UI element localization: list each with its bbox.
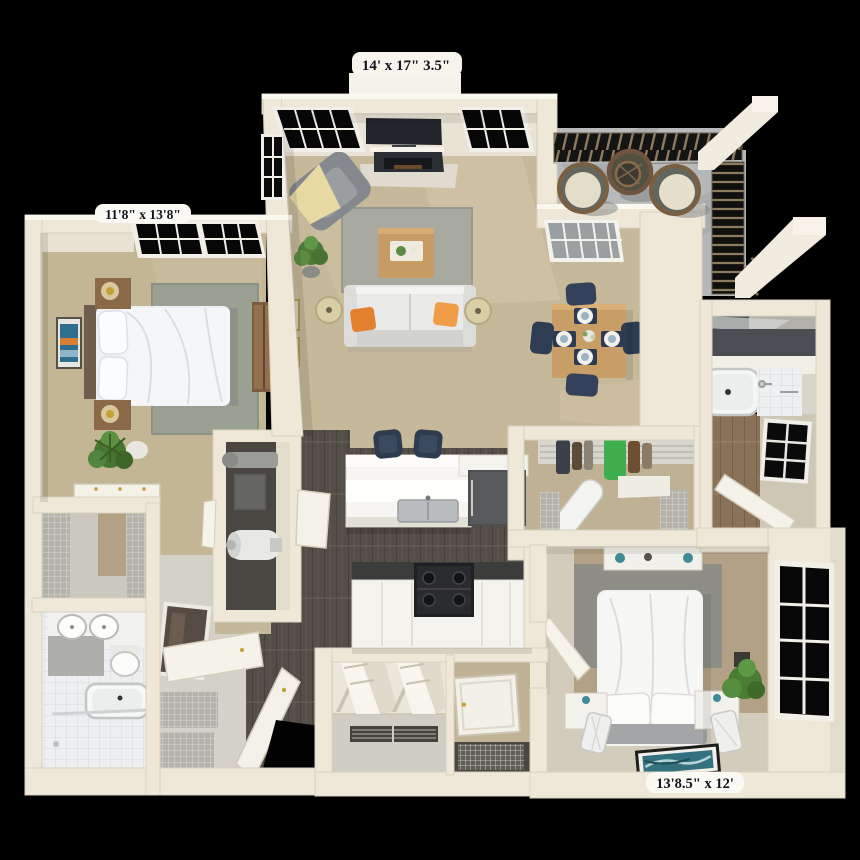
svg-text:14' x 17" 3.5": 14' x 17" 3.5" [362, 58, 450, 74]
svg-text:11'8" x 13'8": 11'8" x 13'8" [105, 207, 181, 222]
svg-text:13'8.5" x 12': 13'8.5" x 12' [656, 776, 734, 792]
